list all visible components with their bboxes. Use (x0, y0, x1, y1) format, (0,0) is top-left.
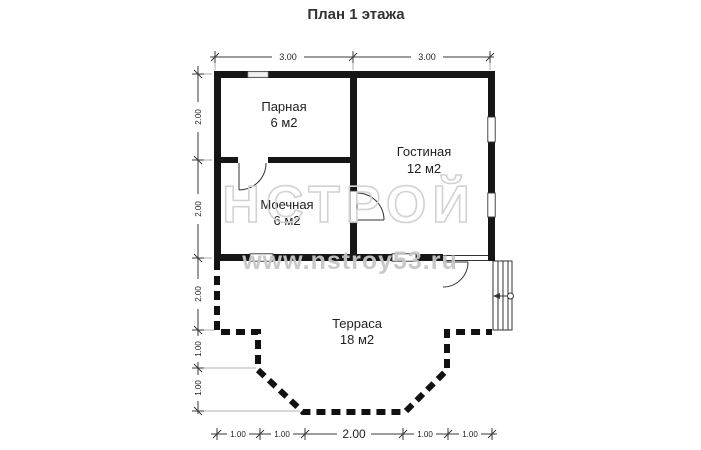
room-area-gostinaya: 12 м2 (407, 161, 441, 176)
wall-right (488, 78, 495, 261)
watermark-logo: НСТРОЙ (222, 175, 475, 234)
dimension-label: 1.00 (462, 430, 478, 439)
extension-lines (204, 61, 490, 411)
dimension-label: 3.00 (279, 52, 297, 62)
wall-left (214, 78, 221, 261)
wall-middle-upper (350, 78, 357, 191)
dimension-label: 1.00 (194, 380, 203, 396)
dimension-label: 2.00 (194, 286, 203, 302)
dimension-label: 1.00 (417, 430, 433, 439)
wall-partition-right (268, 157, 357, 163)
entrance-marker-circle (508, 293, 514, 299)
dimension-line-left: 2.00 2.00 2.00 1.00 1.00 (192, 66, 204, 415)
window-right-upper (488, 117, 495, 142)
page-title: План 1 этажа (307, 6, 405, 23)
dimension-label: 2.00 (194, 109, 203, 125)
floor-plan-canvas: План 1 этажа 3.00 3.00 2.0 (0, 0, 701, 450)
room-label-parnaya: Парная (261, 99, 306, 114)
dimension-label: 2.00 (194, 201, 203, 217)
wall-partition-left (214, 157, 238, 163)
window-right-lower (488, 193, 495, 217)
dimension-label: 1.00 (274, 430, 290, 439)
watermark: НСТРОЙ www.nstroy53.ru (222, 175, 475, 275)
watermark-url: www.nstroy53.ru (241, 247, 458, 275)
dimension-label: 1.00 (194, 341, 203, 357)
room-label-gostinaya: Гостиная (397, 144, 452, 159)
stairs (493, 261, 514, 330)
dimension-label: 1.00 (230, 430, 246, 439)
room-area-parnaya: 6 м2 (270, 115, 297, 130)
window-top (248, 72, 268, 77)
dimension-line-top: 3.00 3.00 (210, 51, 494, 63)
room-label-terrasa: Терраса (332, 316, 383, 331)
dimension-label: 2.00 (342, 427, 366, 441)
dimension-line-bottom: 1.00 1.00 2.00 1.00 1.00 (211, 427, 497, 441)
room-area-terrasa: 18 м2 (340, 332, 374, 347)
dimension-label: 3.00 (418, 52, 436, 62)
floor-plan-page: План 1 этажа 3.00 3.00 2.0 (0, 0, 701, 450)
